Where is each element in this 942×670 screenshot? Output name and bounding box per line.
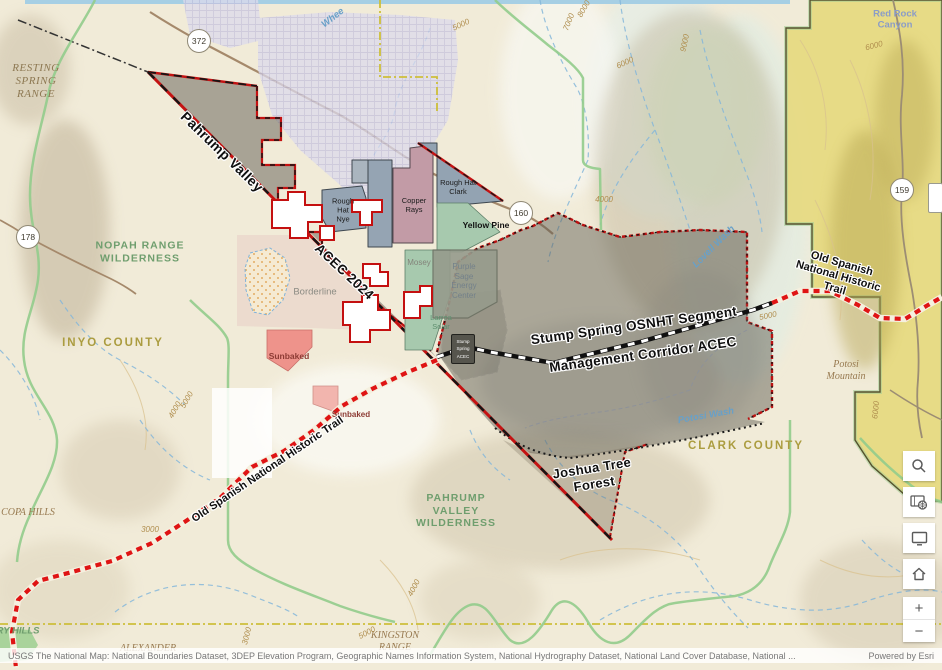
route-number: 372 — [192, 36, 206, 46]
home-icon — [911, 566, 927, 582]
screenshot-button[interactable] — [903, 523, 935, 553]
badge-line: Stump — [452, 338, 474, 345]
route-shield-372: 372 — [187, 29, 211, 53]
basemap-gallery-icon — [910, 494, 928, 510]
badge-line: Spring — [452, 345, 474, 352]
attribution-bar: USGS The National Map: National Boundari… — [0, 648, 942, 663]
search-button[interactable] — [903, 451, 935, 481]
stump-spring-badge: Stump Spring ACEC — [451, 334, 475, 364]
attribution-sources: USGS The National Map: National Boundari… — [8, 651, 796, 661]
screenshot-icon — [911, 531, 928, 546]
route-marker-blank — [928, 183, 942, 213]
route-number: 159 — [895, 185, 909, 195]
zoom-control: + − — [903, 597, 935, 642]
route-shield-178: 178 — [16, 225, 40, 249]
zoom-out-button[interactable]: − — [903, 620, 935, 642]
route-number: 160 — [514, 208, 528, 218]
home-button[interactable] — [903, 559, 935, 589]
search-icon — [911, 458, 927, 474]
route-shield-159: 159 — [890, 178, 914, 202]
zoom-in-button[interactable]: + — [903, 597, 935, 619]
map-viewport[interactable]: RESTING SPRING RANGE NOPAH RANGE WILDERN… — [0, 0, 942, 670]
route-number: 178 — [21, 232, 35, 242]
route-shield-160: 160 — [509, 201, 533, 225]
badge-line: ACEC — [452, 353, 474, 360]
powered-by-esri[interactable]: Powered by Esri — [868, 651, 934, 661]
top-water-line — [25, 0, 790, 4]
basemap-gallery-button[interactable] — [903, 487, 935, 517]
